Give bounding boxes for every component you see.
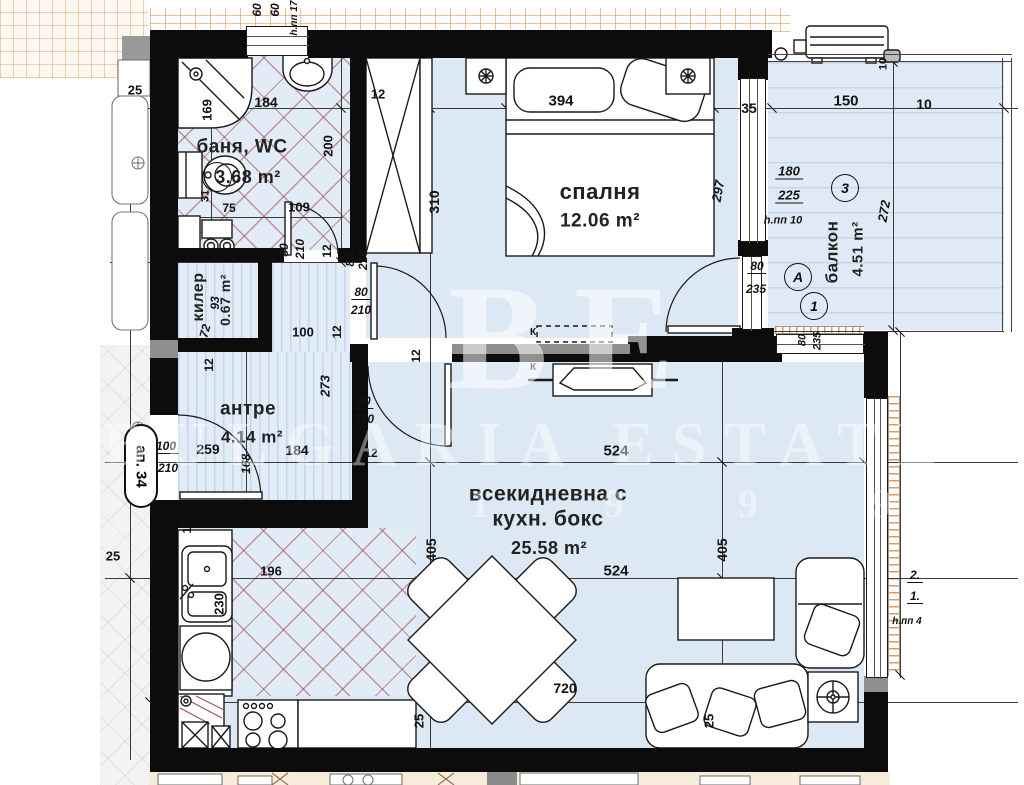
dimension-label: 72 [197, 323, 212, 339]
room-name-living: всекидневна с [469, 484, 627, 505]
dimension-label: 10 [879, 58, 890, 70]
dimension-label: 150 [833, 94, 858, 109]
dimension-label: 210 [158, 462, 178, 474]
dimension-label: К [530, 363, 536, 373]
dimension-label: 230 [213, 593, 226, 615]
dimension-label: 12 [364, 447, 377, 459]
nightstand-right [666, 58, 710, 94]
dimension-label: h.пп 10 [764, 216, 803, 227]
apartment-number-badge: ап. 34 [124, 424, 158, 508]
wall-bottom [150, 748, 888, 772]
dimension-label: 1. [907, 590, 923, 604]
dimension-label: 405 [715, 538, 729, 561]
stove [238, 700, 298, 749]
dimension-label: 80 [344, 253, 356, 266]
dimension-label: 524 [603, 444, 628, 459]
wall-left-cap [150, 340, 178, 358]
dimension-label: 100 [292, 326, 314, 339]
dimension-label: 80 [278, 243, 290, 256]
room-area-living: 25.58 m² [511, 539, 587, 557]
room-area-bedroom: 12.06 m² [560, 212, 640, 231]
room-name-bath: баня, WC [196, 138, 287, 157]
dimension-label: 25 [106, 550, 120, 563]
window-marker-A: A [784, 263, 812, 291]
dimension-label: 405 [424, 538, 438, 561]
dimension-label: 80 [351, 286, 370, 300]
dimension-label: 297 [710, 179, 727, 203]
dimension-label: 109 [288, 201, 310, 214]
shower-cabin [178, 58, 252, 128]
coffee-table [678, 578, 774, 640]
room-name-living: кухн. бокс [492, 509, 603, 530]
wall-closet-bottom [178, 338, 272, 352]
dimension-label: 80 [798, 334, 809, 346]
floor-plan: ап. 34 BE BULGARIA ESTATE 1 9 9 9 6060h.… [0, 0, 1024, 785]
apartment-number: ап. 34 [133, 445, 150, 487]
dimension-label: 90 [354, 395, 373, 409]
dimension-label: 60 [269, 3, 281, 16]
balcony-railing-top [768, 54, 1012, 62]
nightstand-left [466, 58, 506, 94]
dimension-label: 25 [703, 714, 716, 728]
dimension-label: 720 [553, 681, 576, 695]
dimension-label: 184 [254, 95, 277, 109]
dimension-label: 225 [775, 189, 803, 204]
dimension-label: 272 [876, 199, 893, 223]
window-marker-3: 3 [831, 174, 859, 202]
side-table-plant [808, 672, 858, 722]
wall-closet-right [258, 262, 272, 346]
dimension-label: h.пп 17 [290, 0, 300, 35]
dimension-label: 12 [181, 520, 193, 533]
wall-balcony-top [738, 52, 768, 80]
dimension-label: 168 [240, 454, 252, 474]
wall-right-lower [864, 692, 888, 748]
room-name-hall: антре [220, 400, 276, 419]
room-area-balcony: 4.51 m² [851, 221, 866, 276]
window-marker-circle [202, 162, 232, 192]
wall-hall-right [352, 362, 368, 500]
dimension-label: 35 [741, 101, 757, 115]
dimension-label: 196 [260, 565, 282, 578]
room-name-closet: килер [191, 273, 207, 322]
dimension-label: 235 [813, 332, 824, 350]
wall-stub [350, 344, 368, 362]
wall-top-main [308, 30, 772, 58]
room-name-balcony: балкон [824, 221, 841, 284]
wall-bath-bottom [178, 248, 284, 262]
dimension-label: 184 [285, 443, 308, 457]
dimension-label: 12 [203, 358, 215, 371]
dimension-label: 210 [354, 413, 374, 425]
wall-left-lower [150, 500, 178, 772]
dimension-label: 12 [331, 325, 343, 338]
wall-right-cap [864, 676, 888, 692]
dimension-label: 25 [128, 84, 142, 97]
dimension-label: 31 [201, 190, 212, 202]
dimension-label: 2. [907, 569, 923, 583]
bathroom-sink [283, 55, 332, 91]
dimension-label: 235 [746, 283, 766, 295]
room-area-closet: 0.67 m² [218, 274, 232, 326]
wall-balcony-mid [738, 240, 768, 256]
wall-right-upper [864, 332, 888, 398]
dimension-label: 10 [916, 97, 932, 111]
dimension-label: 12 [321, 244, 333, 257]
wall-bedroom-living-core [452, 354, 630, 362]
installation-shaft [178, 694, 230, 750]
balcony-railing-right [1002, 58, 1012, 332]
dimension-label: 169 [201, 99, 214, 121]
wall-bedroom-living-black [628, 336, 782, 362]
dimension-label: 180 [775, 165, 803, 180]
window-marker-1: 1 [800, 292, 828, 320]
dimension-label: 200 [322, 135, 335, 157]
dimension-label: h.пп 4 [892, 617, 921, 627]
dimension-label: 12 [371, 88, 385, 101]
room-name-bedroom: спалня [560, 181, 641, 203]
room-area-hall: 4.14 m² [221, 429, 283, 446]
worktop [298, 700, 416, 748]
dimension-label: 210 [351, 304, 371, 316]
dimension-label: К [530, 328, 536, 338]
dimension-label: 259 [196, 442, 219, 456]
dimension-label: 210 [357, 250, 369, 270]
dimension-label: 210 [294, 239, 306, 259]
dimension-label: 80 [747, 260, 766, 274]
dimension-label: 273 [319, 375, 332, 397]
dimension-label: 60 [251, 3, 263, 16]
dimension-label: 75 [222, 202, 235, 214]
dimension-label: 394 [548, 94, 573, 109]
dimension-label: 12 [410, 349, 422, 362]
dimension-label: 524 [603, 564, 628, 579]
washing-machine [180, 626, 232, 690]
window-living-right [866, 398, 888, 678]
wall-bath-right [350, 55, 366, 262]
dimension-label: 310 [427, 190, 441, 213]
dimension-label: 25 [413, 714, 426, 728]
